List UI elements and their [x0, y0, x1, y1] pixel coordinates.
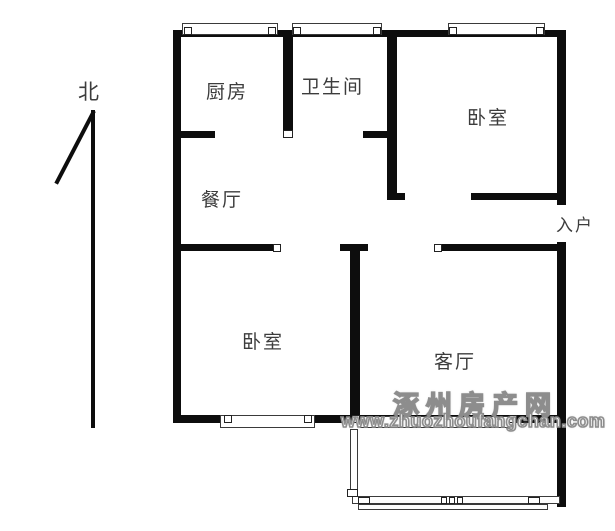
bathroom-window-cap-r: [373, 27, 381, 35]
balcony-left-wall: [350, 429, 358, 491]
label-kitchen: 厨房: [206, 77, 248, 104]
balcony-rail-post-4: [457, 497, 463, 504]
bedroom1-window-cap-l: [449, 27, 457, 35]
mid-wall-left: [173, 244, 273, 251]
label-bathroom: 卫生间: [301, 72, 364, 99]
bedroom2-living-divider: [350, 251, 360, 418]
mid-wall-left-cap: [273, 244, 281, 252]
bath-bedroom1-wall: [387, 30, 397, 200]
label-north: 北: [78, 76, 101, 106]
balcony-left-wall-cap: [347, 489, 358, 497]
kitchen-window-cap-l: [184, 27, 192, 35]
right-wall-upper: [557, 30, 566, 205]
balcony-rail-post-5: [528, 497, 540, 504]
north-arrow-tip: [54, 110, 95, 185]
watermark-site-url: www.zhuozhoufangchan.com: [341, 411, 605, 432]
floorplan-canvas: 北厨房卫生间卧室餐厅入户卧室客厅: [0, 0, 615, 531]
balcony-rail-post-2: [441, 497, 447, 504]
bathroom-window-cap-l: [293, 27, 301, 35]
bathroom-window: [292, 23, 382, 35]
balcony-rail-post-3: [449, 497, 455, 504]
bedroom2-window: [220, 415, 315, 428]
mid-wall-right: [442, 244, 566, 251]
bedroom1-door-foot: [387, 193, 405, 200]
kitchen-bath-divider: [283, 30, 293, 130]
floorplan-image: { "title": "apartment-floorplan", "color…: [0, 0, 615, 531]
bedroom1-window: [448, 23, 545, 35]
bedroom2-window-cap-r: [304, 415, 312, 423]
bedroom1-window-cap-r: [536, 27, 544, 35]
label-living: 客厅: [434, 347, 476, 374]
mid-wall-t: [340, 244, 368, 251]
north-arrow-shaft: [91, 110, 95, 428]
balcony-rail-inner: [358, 504, 548, 510]
balcony-rail-post-1: [358, 497, 370, 504]
label-entry: 入户: [556, 211, 594, 236]
kitchen-window-cap-r: [268, 27, 276, 35]
mid-wall-right-cap: [434, 244, 442, 252]
label-bedroom-2: 卧室: [242, 327, 284, 354]
bedroom2-window-cap-l: [224, 415, 232, 423]
bedroom1-bottom-wall: [471, 193, 566, 200]
bath-door-stub: [363, 131, 387, 138]
kitchen-bath-divider-cap: [283, 130, 293, 138]
kitchen-window: [182, 23, 278, 35]
kitchen-door-stub: [173, 131, 215, 138]
label-bedroom-1: 卧室: [467, 103, 509, 130]
left-wall: [173, 30, 181, 423]
label-dining: 餐厅: [201, 185, 243, 212]
right-wall-lower: [557, 242, 566, 507]
